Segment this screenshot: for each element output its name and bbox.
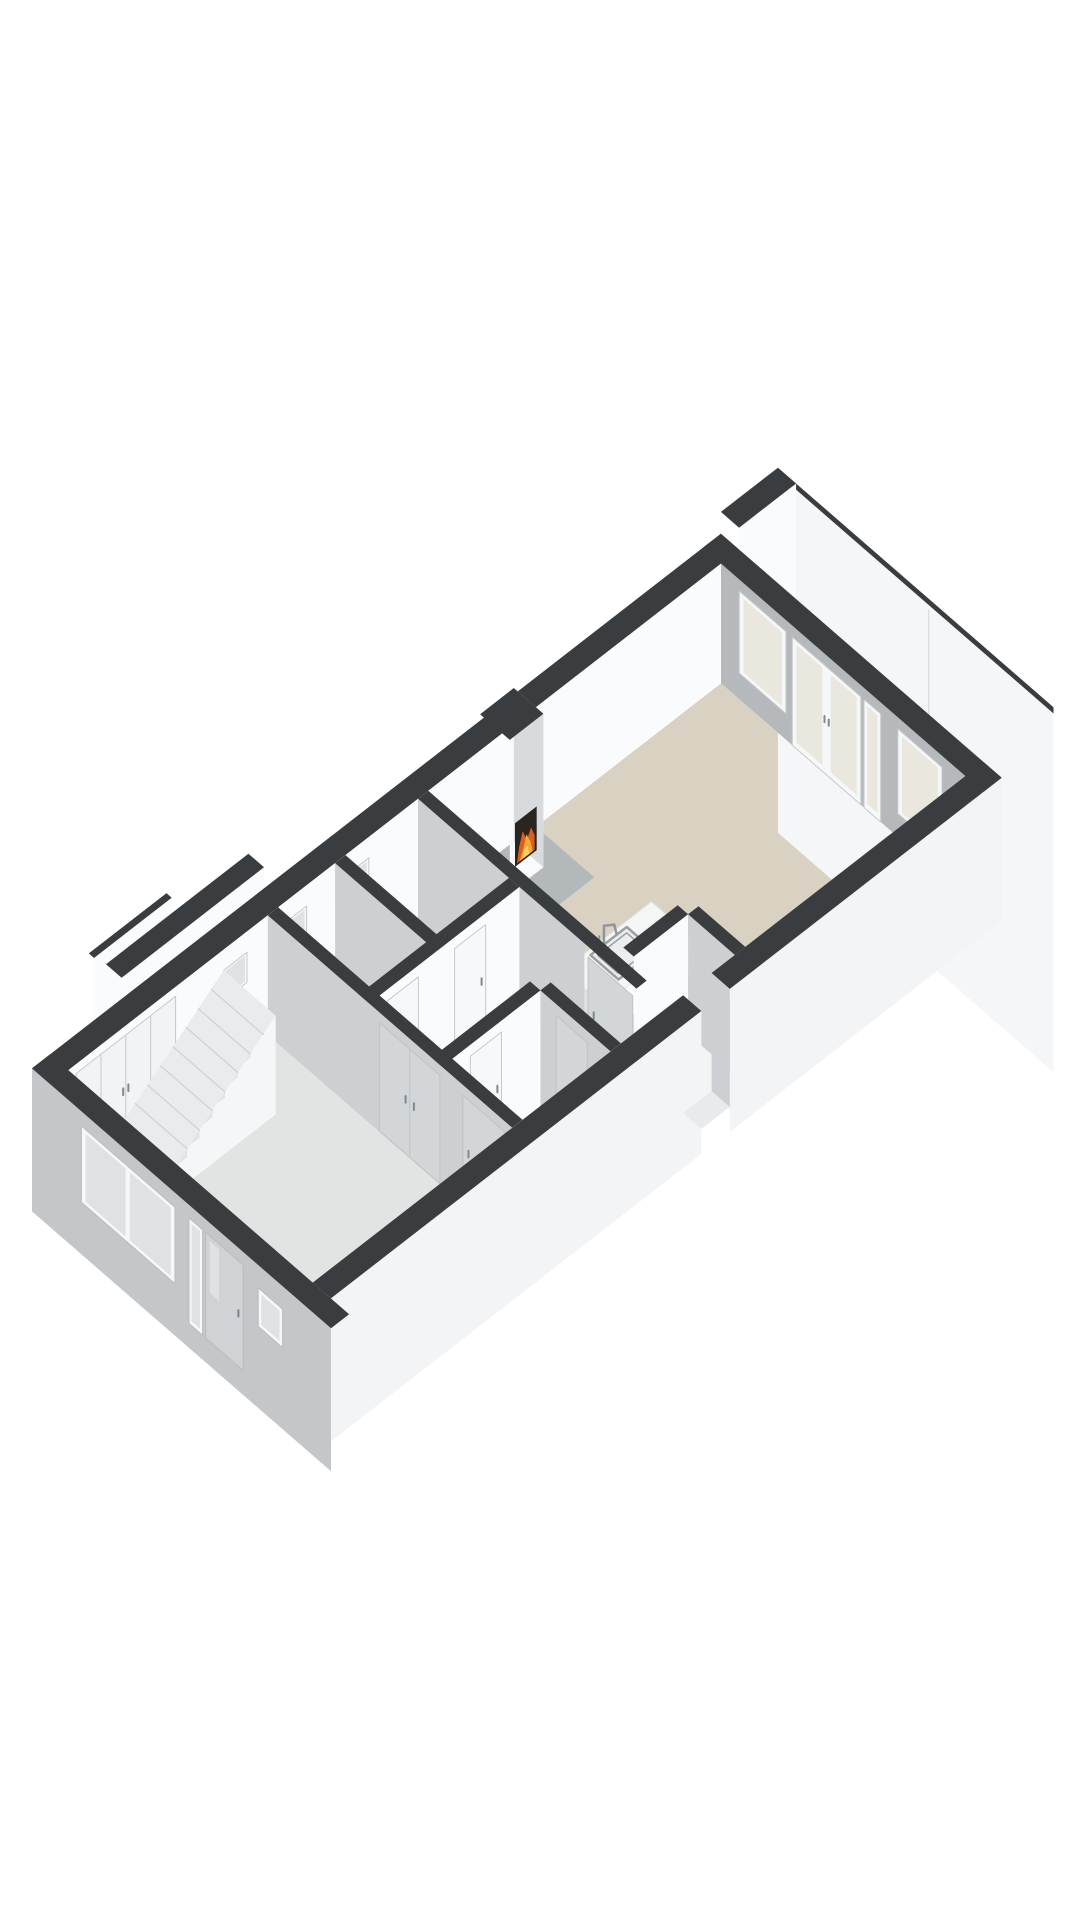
front-sidelight-glass: [192, 1224, 200, 1329]
se-garden-door-jamb: [712, 983, 730, 1108]
front-door-glass: [210, 1241, 219, 1301]
floorplan-page: [0, 0, 1080, 1920]
rear-sidelight-glass: [867, 706, 877, 813]
floorplan-3d-canvas: [0, 0, 1080, 1920]
